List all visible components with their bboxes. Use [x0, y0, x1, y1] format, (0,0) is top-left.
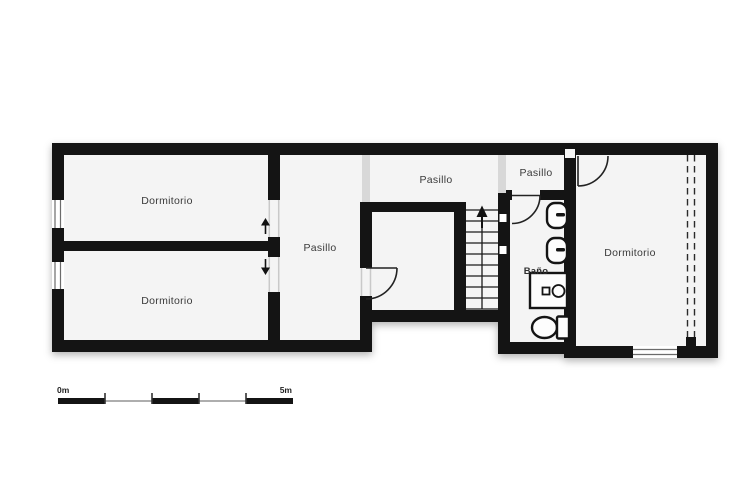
scale-bar: 0m 5m: [57, 385, 293, 404]
scale-end-label: 5m: [280, 385, 293, 395]
room-label-dormitorio-bottom-left: Dormitorio: [141, 295, 192, 307]
scale-start-label: 0m: [57, 385, 70, 395]
floor-plan-page: Dormitorio Dormitorio Pasillo Pasillo Pa…: [0, 0, 750, 500]
wall-midroom-top: [360, 202, 466, 212]
window-bottom-right: [633, 346, 677, 358]
wall-left-a: [52, 143, 64, 200]
wall-hall-right-b: [360, 296, 372, 352]
opening-corridor-to-small-hall: [498, 155, 506, 193]
room-label-dormitorio-top-left: Dormitorio: [141, 195, 192, 207]
window-left-bottom: [52, 262, 64, 289]
wall-notch-stair-a: [500, 214, 507, 222]
room-label-pasillo-vertical: Pasillo: [303, 242, 336, 254]
wall-bedrooms-hall-c: [268, 292, 280, 352]
room-label-pasillo-horizontal: Pasillo: [419, 174, 452, 186]
wall-bedrooms-hall-a: [268, 143, 280, 200]
wall-bottom-left-block: [52, 340, 372, 352]
window-left-top: [52, 200, 64, 228]
wall-left-b: [52, 228, 64, 262]
building-plan: Dormitorio Dormitorio Pasillo Pasillo Pa…: [52, 143, 718, 358]
wall-notch-bedroom-door: [565, 149, 575, 158]
wall-bathroom-top-a: [506, 190, 512, 200]
shower-icon: [530, 273, 567, 308]
sink-icon: [547, 203, 567, 228]
room-label-bano: Baño: [524, 266, 549, 277]
room-label-dormitorio-right: Dormitorio: [604, 247, 655, 259]
wall-top: [52, 143, 718, 155]
toilet-icon: [532, 317, 569, 339]
sink-icon-2: [547, 238, 567, 263]
wall-right-bedroom-bottom-a: [564, 346, 633, 358]
wall-bedroom-divider: [64, 241, 280, 251]
wall-bedrooms-hall-b: [268, 237, 280, 257]
floor-plan: Dormitorio Dormitorio Pasillo Pasillo Pa…: [0, 0, 750, 500]
opening-hall-to-corridor: [362, 155, 370, 202]
wall-midroom-bottom: [360, 310, 510, 322]
wall-right: [706, 143, 718, 358]
room-label-pasillo-small: Pasillo: [519, 167, 552, 179]
wall-notch-stair-b: [500, 246, 507, 254]
wall-stair-left: [454, 202, 466, 322]
